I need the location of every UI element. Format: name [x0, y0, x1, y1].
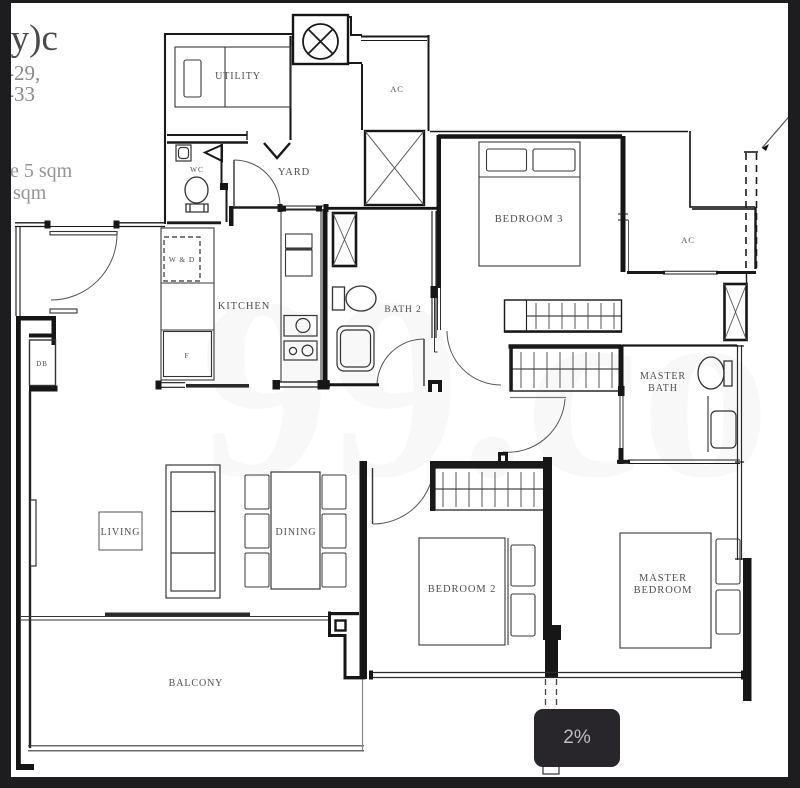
- svg-text:AC: AC: [390, 84, 404, 94]
- svg-text:UTILITY: UTILITY: [215, 71, 261, 82]
- svg-text:BALCONY: BALCONY: [169, 678, 224, 689]
- svg-text:e 5 sqm: e 5 sqm: [10, 160, 73, 182]
- svg-text:MASTER: MASTER: [640, 371, 686, 382]
- svg-text:-33: -33: [7, 82, 35, 106]
- svg-text:MASTER: MASTER: [639, 573, 687, 584]
- svg-text:AC: AC: [681, 235, 695, 245]
- svg-text:DB: DB: [36, 360, 48, 368]
- svg-text:BEDROOM: BEDROOM: [634, 585, 693, 596]
- svg-text:BEDROOM 2: BEDROOM 2: [428, 584, 496, 595]
- svg-text:sqm: sqm: [13, 182, 47, 204]
- svg-text:KITCHEN: KITCHEN: [218, 301, 270, 312]
- svg-text:LIVING: LIVING: [101, 527, 141, 538]
- svg-text:DINING: DINING: [276, 527, 317, 538]
- svg-text:YARD: YARD: [278, 167, 310, 178]
- svg-text:BATH: BATH: [648, 383, 678, 394]
- svg-text:BEDROOM 3: BEDROOM 3: [495, 214, 563, 225]
- svg-text:WC: WC: [190, 165, 204, 174]
- svg-text:W & D: W & D: [169, 255, 195, 264]
- svg-text:F: F: [184, 351, 189, 360]
- svg-text:BATH 2: BATH 2: [384, 305, 421, 315]
